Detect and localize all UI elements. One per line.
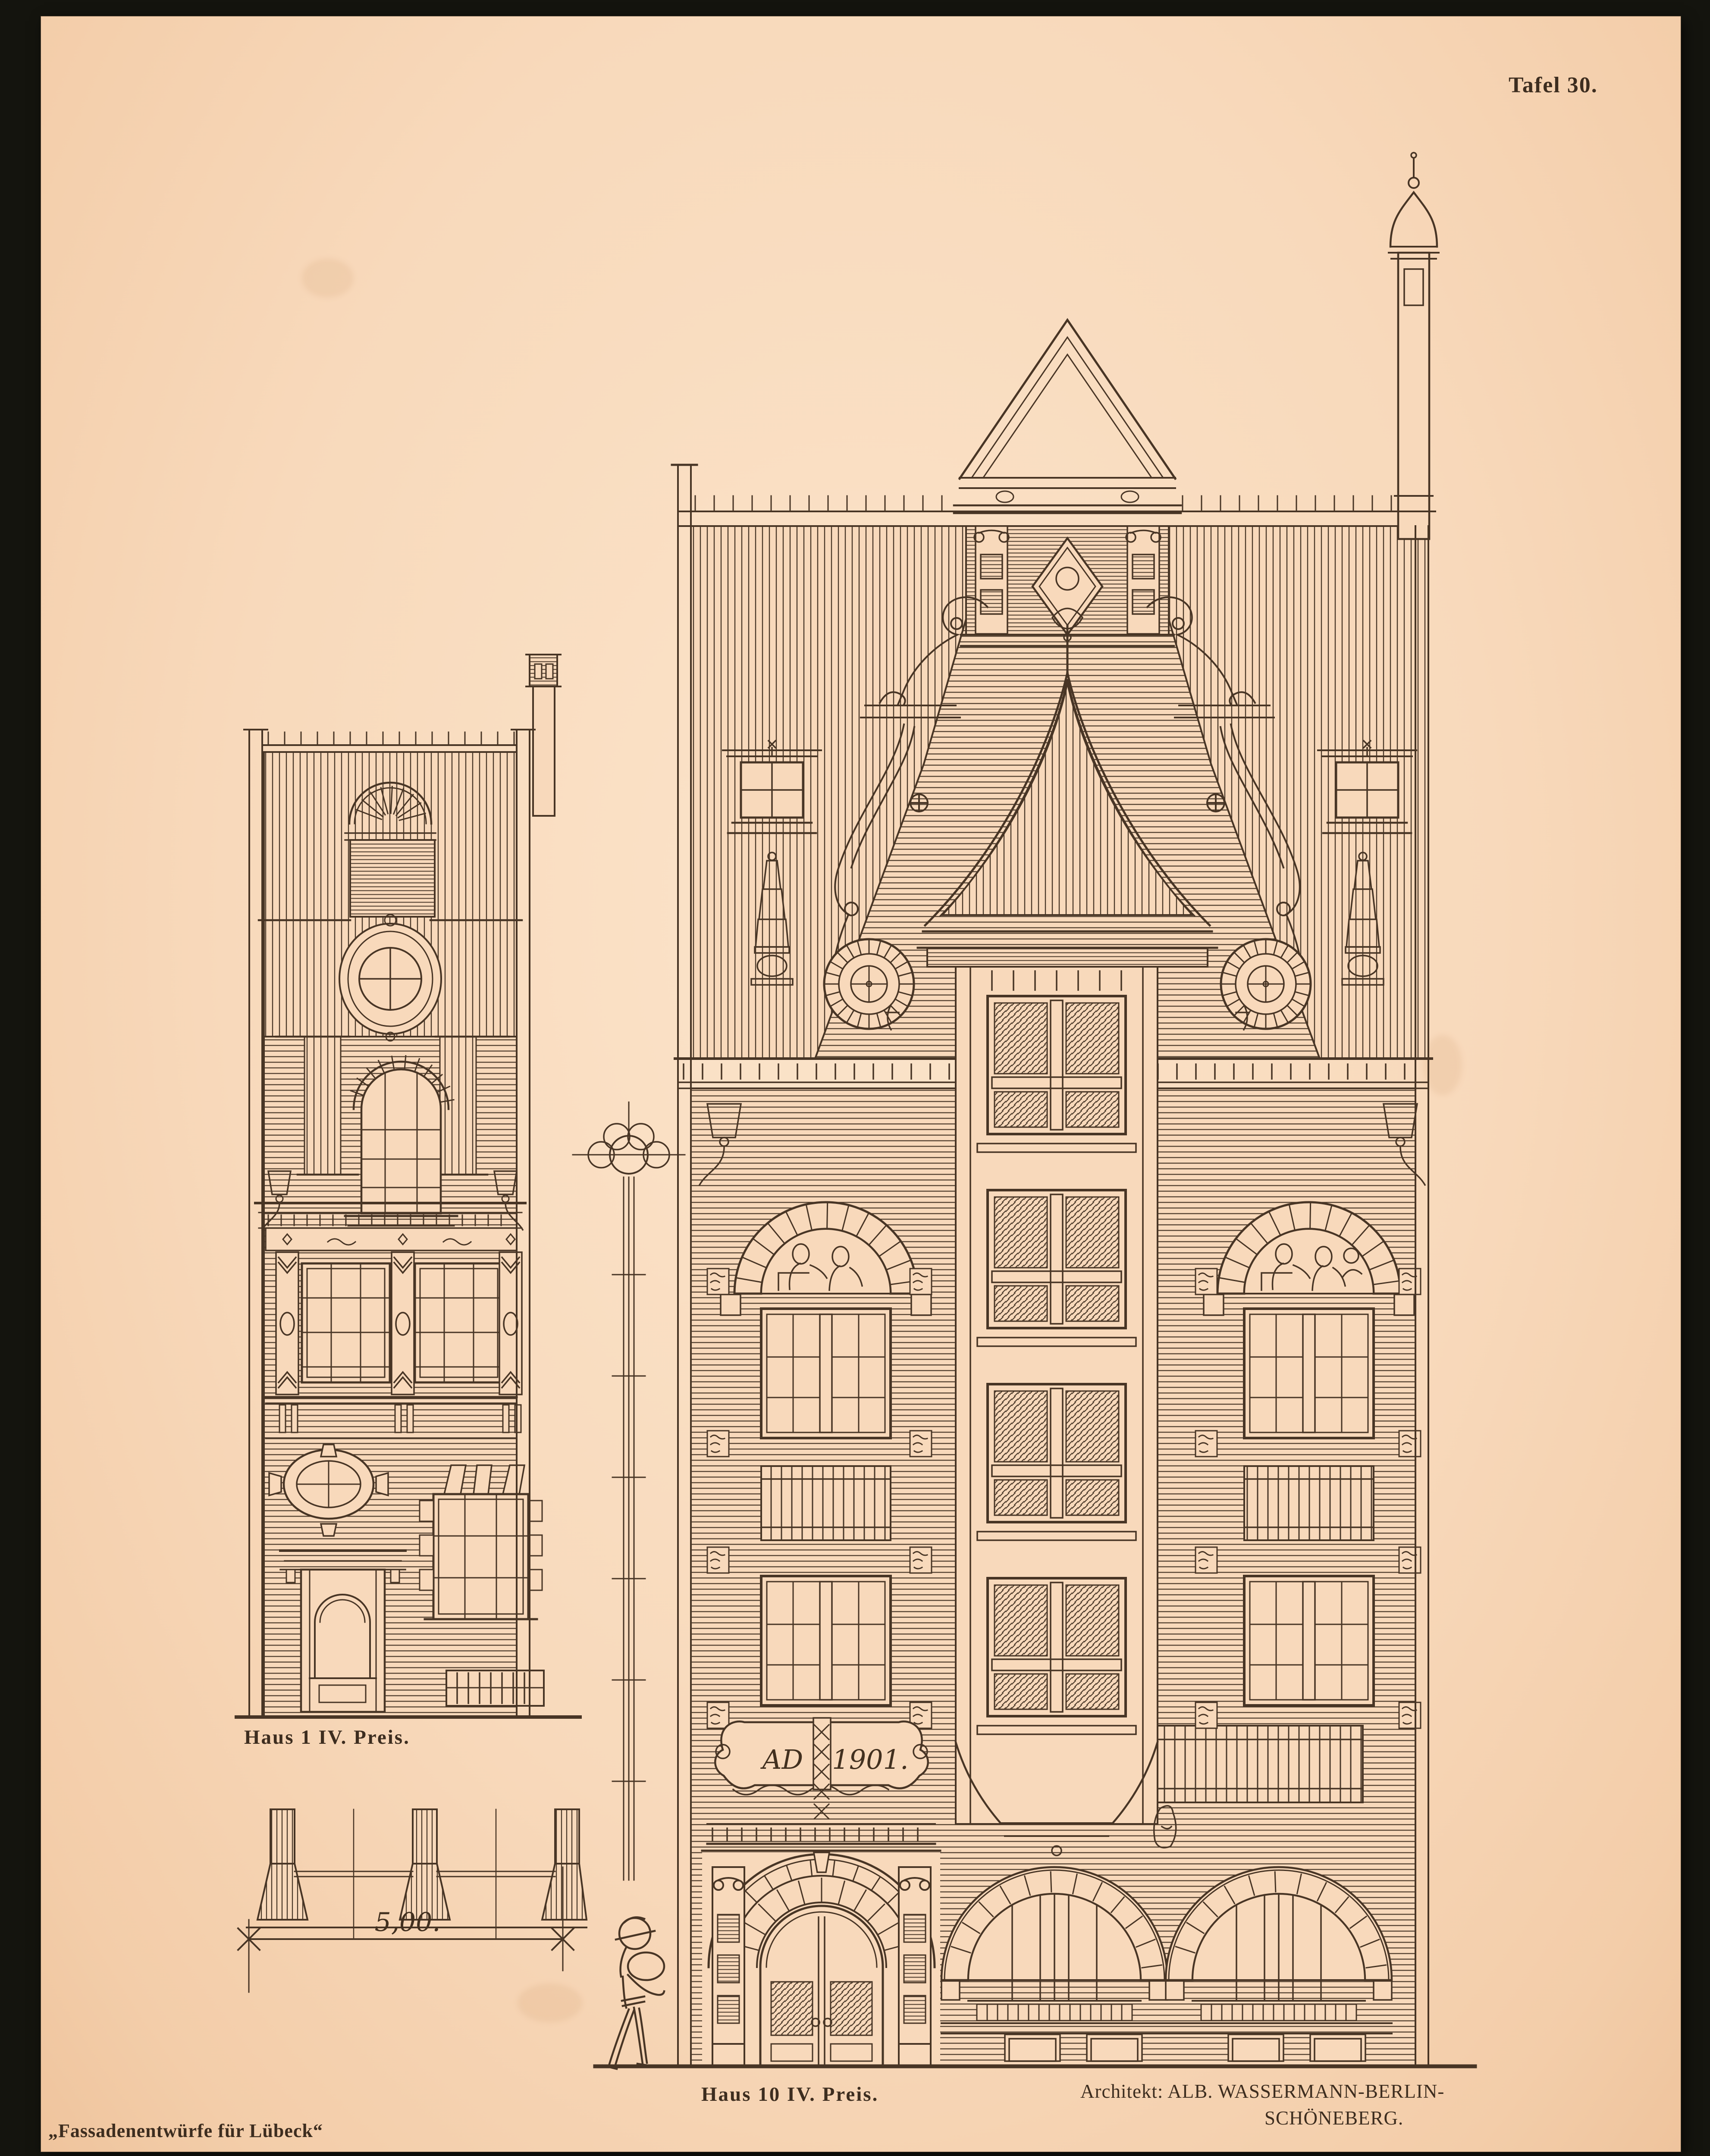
haus1-caption: Haus 1 IV. Preis.	[244, 1726, 410, 1749]
series-title: „Fassadenentwürfe für Lübeck“	[48, 2120, 323, 2142]
plate-number-label: Tafel 30.	[1509, 72, 1598, 98]
haus10-caption: Haus 10 IV. Preis.	[701, 2083, 879, 2106]
architect-credit-line2: SCHÖNEBERG.	[1264, 2107, 1403, 2129]
cartouche-monogram: AD	[760, 1744, 803, 1775]
plate-drawing: 5,00.	[0, 0, 1710, 2156]
site-plan: 5,00.	[238, 1809, 587, 1992]
scale-rod	[573, 1102, 685, 1880]
haus10-elevation: AD 1901.	[595, 153, 1475, 2066]
scale-figure	[603, 1917, 664, 2069]
haus1-elevation	[236, 655, 580, 1717]
cartouche-year: 1901.	[832, 1744, 909, 1775]
plan-dimension-label: 5,00.	[375, 1907, 441, 1937]
architect-credit-line1: Architekt: ALB. WASSERMANN-BERLIN-	[1080, 2080, 1444, 2103]
scanned-plate-page: 5,00.	[0, 0, 1710, 2156]
